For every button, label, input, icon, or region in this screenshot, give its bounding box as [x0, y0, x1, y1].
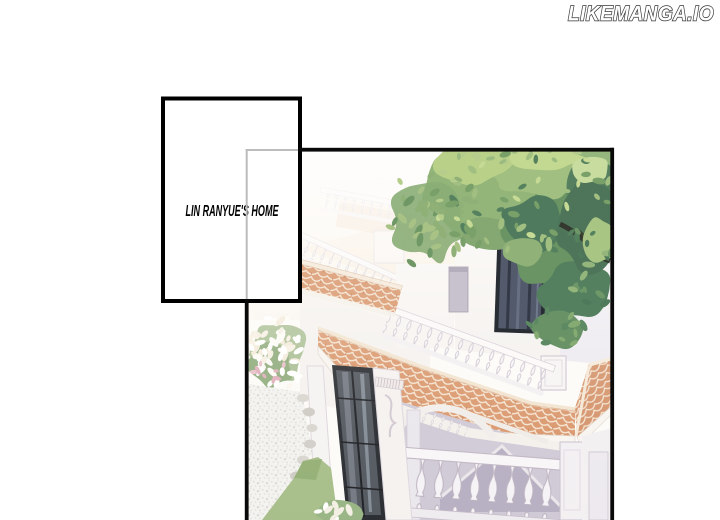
- svg-text:LIN RANYUE'S HOME: LIN RANYUE'S HOME: [186, 203, 280, 220]
- svg-text:LIKEMANGA.IO: LIKEMANGA.IO: [568, 2, 714, 26]
